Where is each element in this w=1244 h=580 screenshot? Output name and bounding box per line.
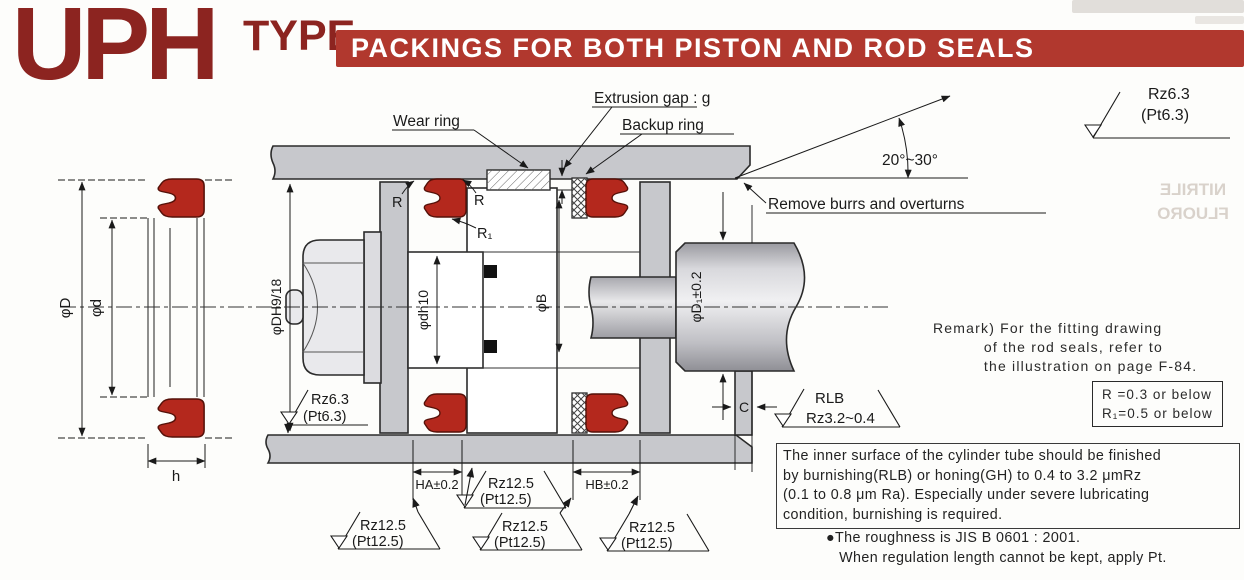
- surf-pt125-b3: (Pt12.5): [621, 536, 673, 552]
- dim-groove-dia: φdh10: [415, 290, 431, 330]
- cylinder-bottom-wall: [266, 435, 752, 463]
- surf-rz32: Rz3.2~0.4: [806, 410, 875, 427]
- surf-pt125-up1: (Pt12.5): [480, 492, 532, 508]
- dim-rod-dia: φD₁±0.2: [688, 271, 704, 322]
- label-wear-ring: Wear ring: [393, 113, 460, 130]
- surf-pt125-b2: (Pt12.5): [494, 535, 546, 551]
- backup-ring-bottom: [572, 393, 587, 433]
- piston-seal-top: [424, 179, 466, 217]
- surf-pt63-bl: (Pt6.3): [303, 409, 347, 425]
- rod-seal-bottom: [586, 394, 628, 432]
- label-extrusion-gap: Extrusion gap : g: [594, 90, 710, 107]
- label-r1: R₁: [477, 226, 492, 242]
- rod-seal-top: [586, 179, 628, 217]
- surf-pt125-b1: (Pt12.5): [352, 534, 404, 550]
- left-view-seal-bottom: [158, 399, 204, 437]
- dim-h: h: [172, 468, 180, 485]
- label-remove-burrs: Remove burrs and overturns: [768, 196, 965, 213]
- dim-phiD: φD: [57, 298, 74, 319]
- label-r-right: R: [474, 193, 484, 209]
- surf-rz125-b1: Rz12.5: [360, 518, 406, 534]
- label-backup-ring: Backup ring: [622, 117, 704, 134]
- dim-c: C: [739, 399, 749, 415]
- surf-rz63-tr: Rz6.3: [1148, 86, 1190, 103]
- label-r-left: R: [392, 195, 402, 211]
- remark-note: Remark) For the fitting drawing of the r…: [933, 319, 1197, 376]
- catalog-page: { "header": { "logo": "UPH", "logo_type"…: [0, 0, 1244, 580]
- roughness-bullet-note: ●The roughness is JIS B 0601 : 2001. Whe…: [826, 529, 1167, 568]
- piston-oring-bottom: [484, 340, 497, 353]
- piston-seal-bottom: [424, 394, 466, 432]
- surf-rlb: RLB: [815, 390, 844, 407]
- piston-oring-top: [484, 265, 497, 278]
- surf-rz125-b2: Rz12.5: [502, 519, 548, 535]
- label-chamfer-angle: 20°~30°: [882, 152, 938, 169]
- dim-ha: HA±0.2: [415, 477, 458, 492]
- surf-pt63-tr: (Pt6.3): [1141, 107, 1189, 124]
- surf-rz125-b3: Rz12.5: [629, 520, 675, 536]
- backup-ring-top: [572, 178, 587, 218]
- dim-housing-bore: φDH9/18: [268, 279, 284, 336]
- surf-rz125-up1: Rz12.5: [488, 476, 534, 492]
- left-view-seal-top: [158, 179, 204, 217]
- dim-phid: φd: [88, 299, 105, 317]
- radius-note-box: R =0.3 or below R₁=0.5 or below: [1092, 381, 1223, 427]
- wear-ring: [487, 170, 550, 190]
- dim-hb: HB±0.2: [585, 477, 628, 492]
- surface-finish-note-box: The inner surface of the cylinder tube s…: [776, 443, 1240, 529]
- surf-rz63-bl: Rz6.3: [311, 392, 349, 408]
- dim-bore-b: φB: [533, 294, 549, 312]
